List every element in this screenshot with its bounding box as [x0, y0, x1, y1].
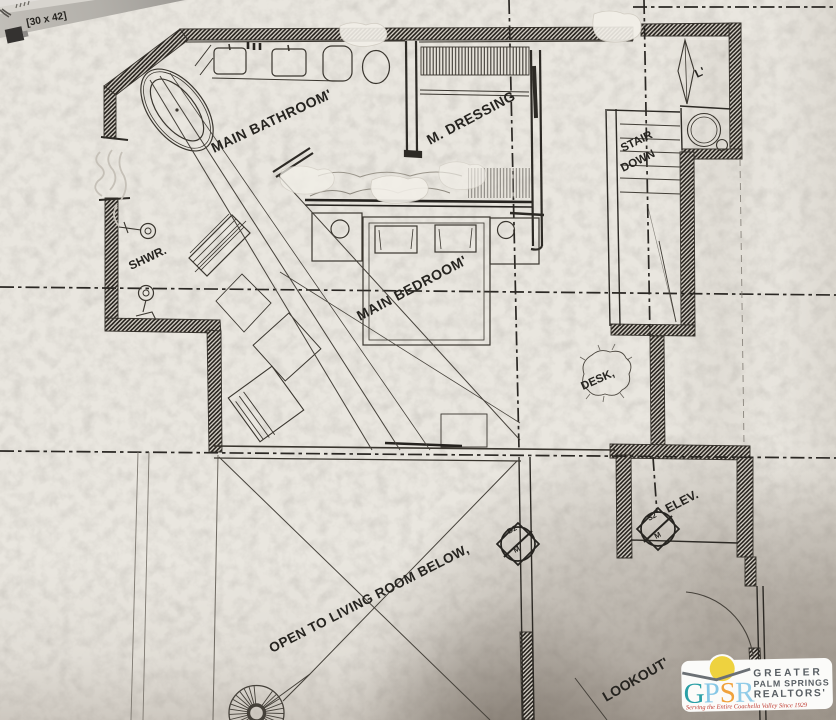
svg-text:REALTORS': REALTORS'	[754, 688, 827, 701]
